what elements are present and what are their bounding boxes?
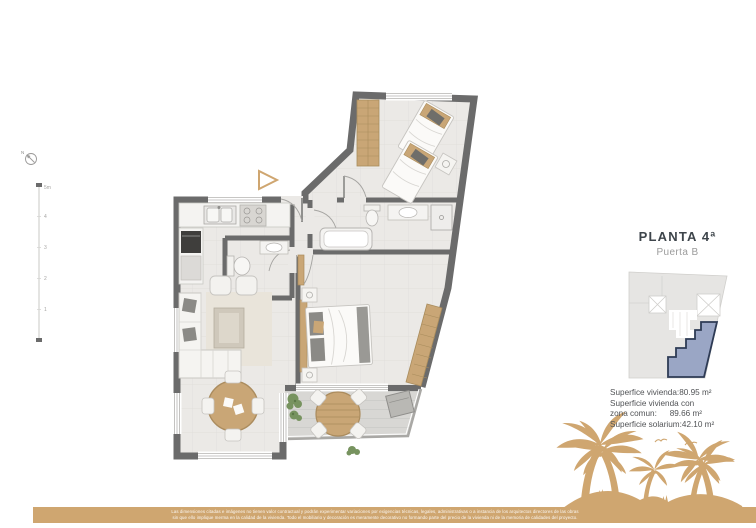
scale-label: 1	[44, 307, 47, 313]
title-block: PLANTA 4ª Puerta B	[600, 229, 755, 258]
surface-row: zona comun: 89.66 m²	[610, 409, 702, 420]
surface-label: Superficie vivienda con	[610, 399, 694, 410]
scale-bar: 5m 4 3 2 1	[36, 183, 51, 342]
nightstand	[302, 288, 317, 302]
surface-row: Superfice vivienda: 80.95 m²	[610, 388, 702, 399]
north-label: N	[21, 150, 24, 155]
wc-sink	[266, 243, 282, 252]
oven	[181, 231, 201, 253]
nightstand	[302, 368, 317, 382]
disclaimer-line-2: sin que ello implique merma en la calida…	[140, 515, 610, 521]
legal-disclaimer: Las dimensiones citadas e imágenes no ti…	[140, 509, 610, 520]
double-bed	[305, 304, 372, 367]
surface-table: Superfice vivienda: 80.95 m² Superficie …	[610, 388, 702, 430]
scale-label: 3	[44, 245, 47, 251]
cushion	[182, 327, 197, 342]
cushion	[182, 298, 197, 313]
north-compass: N	[21, 150, 37, 165]
fridge	[181, 256, 201, 280]
dining-table	[208, 381, 258, 431]
entrance-arrow-icon	[259, 171, 277, 189]
floor-plan	[173, 92, 475, 461]
surface-value: 89.66 m²	[670, 409, 702, 420]
key-plan	[629, 272, 727, 378]
surface-row: Superficie vivienda con	[610, 399, 702, 410]
disclaimer-line-1: Las dimensiones citadas e imágenes no ti…	[140, 509, 610, 515]
scale-label: 2	[44, 276, 47, 282]
scale-label: 5m	[44, 185, 51, 191]
surface-label: Superfice vivienda:	[610, 388, 679, 399]
cooktop	[240, 205, 266, 226]
scale-label: 4	[44, 214, 47, 220]
plant	[347, 446, 361, 456]
page-title: PLANTA 4ª	[600, 229, 755, 244]
surface-label: zona comun:	[610, 409, 657, 420]
floorplan-graphic: N 5m 4 3 2 1	[0, 0, 756, 528]
page-subtitle: Puerta B	[600, 247, 755, 258]
surface-row: Superficie solarium: 42.10 m²	[610, 420, 702, 431]
floorplan-page: { "header": { "title": "PLANTA 4ª", "sub…	[0, 0, 756, 528]
armchair	[236, 276, 257, 295]
toilet	[234, 257, 250, 275]
shower	[431, 205, 452, 230]
surface-value: 80.95 m²	[679, 388, 711, 399]
armchair	[210, 276, 231, 295]
key-plan-shaft	[649, 296, 666, 313]
dining-chair	[202, 398, 214, 414]
surface-value: 42.10 m²	[682, 420, 714, 431]
dining-chair	[225, 429, 241, 441]
dining-chair	[225, 371, 241, 383]
toilet	[366, 210, 378, 226]
dining-chair	[252, 398, 264, 414]
surface-label: Superficie solarium:	[610, 420, 682, 431]
bathroom-sink	[399, 208, 417, 218]
key-plan-shaft	[697, 294, 720, 316]
